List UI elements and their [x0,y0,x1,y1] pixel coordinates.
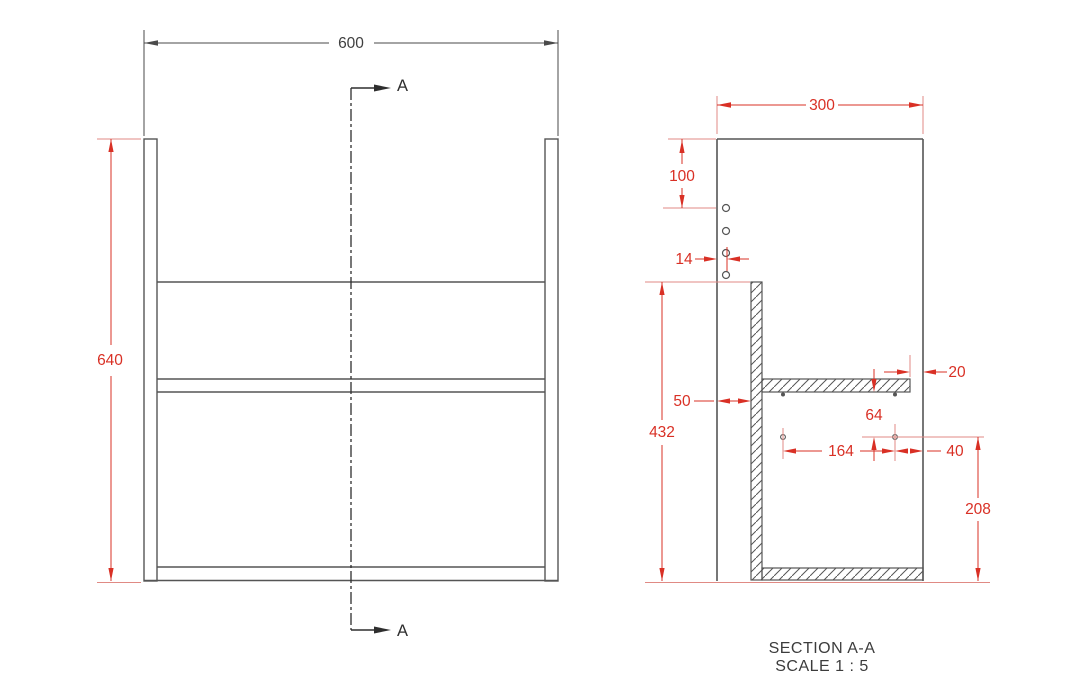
section-arrow-top-icon [374,85,391,92]
scale-note: SCALE 1 : 5 [775,658,869,675]
drawing-canvas: 600 640 A A [0,0,1091,700]
shelf-support-pin-back [893,393,897,397]
shelf-section [762,379,910,392]
dim-64-label: 64 [865,407,883,424]
dim-depth-300: 300 [717,96,923,134]
dim-height-640: 640 [97,139,141,583]
pin-hole-4 [723,272,730,279]
right-side-panel [545,139,558,581]
dim-20: 20 [884,355,966,381]
dim-100-label: 100 [669,168,695,185]
section-title: SECTION A-A [769,640,876,657]
section-arrow-bottom-icon [374,627,391,634]
technical-drawing: 600 640 A A [0,0,1091,700]
dim-164-label: 164 [828,443,854,460]
pin-hole-3 [723,250,730,257]
shelf-pin-holes-column [723,205,730,279]
dim-40: 40 [895,443,964,460]
view-title: SECTION A-A SCALE 1 : 5 [769,640,876,675]
dim-300-label: 300 [809,97,835,114]
dim-50-label: 50 [673,393,691,410]
back-panel-section [751,282,762,580]
left-side-panel [144,139,157,581]
section-cut-line: A A [351,77,408,640]
pin-hole-2 [723,228,730,235]
dim-432-label: 432 [649,424,675,441]
shelf-support-pin-front [781,393,785,397]
dim-208: 208 [965,437,991,581]
pin-hole-1 [723,205,730,212]
dim-640-label: 640 [97,352,123,369]
section-view [717,139,923,581]
arrowhead-down-icon [108,568,113,581]
section-label-top: A [397,77,408,95]
dim-600-label: 600 [338,35,364,52]
arrowhead-up-icon [108,139,113,152]
dim-208-label: 208 [965,501,991,518]
dim-20-label: 20 [948,364,966,381]
dim-40-label: 40 [946,443,964,460]
dim-50: 50 [673,393,751,410]
section-label-bottom: A [397,622,408,640]
dim-164: 164 [783,424,895,461]
dim-100: 100 [663,139,716,208]
dim-432: 432 [645,282,990,583]
section-dimensions: 300 100 14 [645,96,991,583]
arrowhead-right-icon [544,40,558,45]
bottom-board-section [762,568,923,580]
dim-14: 14 [675,247,749,271]
arrowhead-left-icon [144,40,158,45]
dim-14-label: 14 [675,251,693,268]
